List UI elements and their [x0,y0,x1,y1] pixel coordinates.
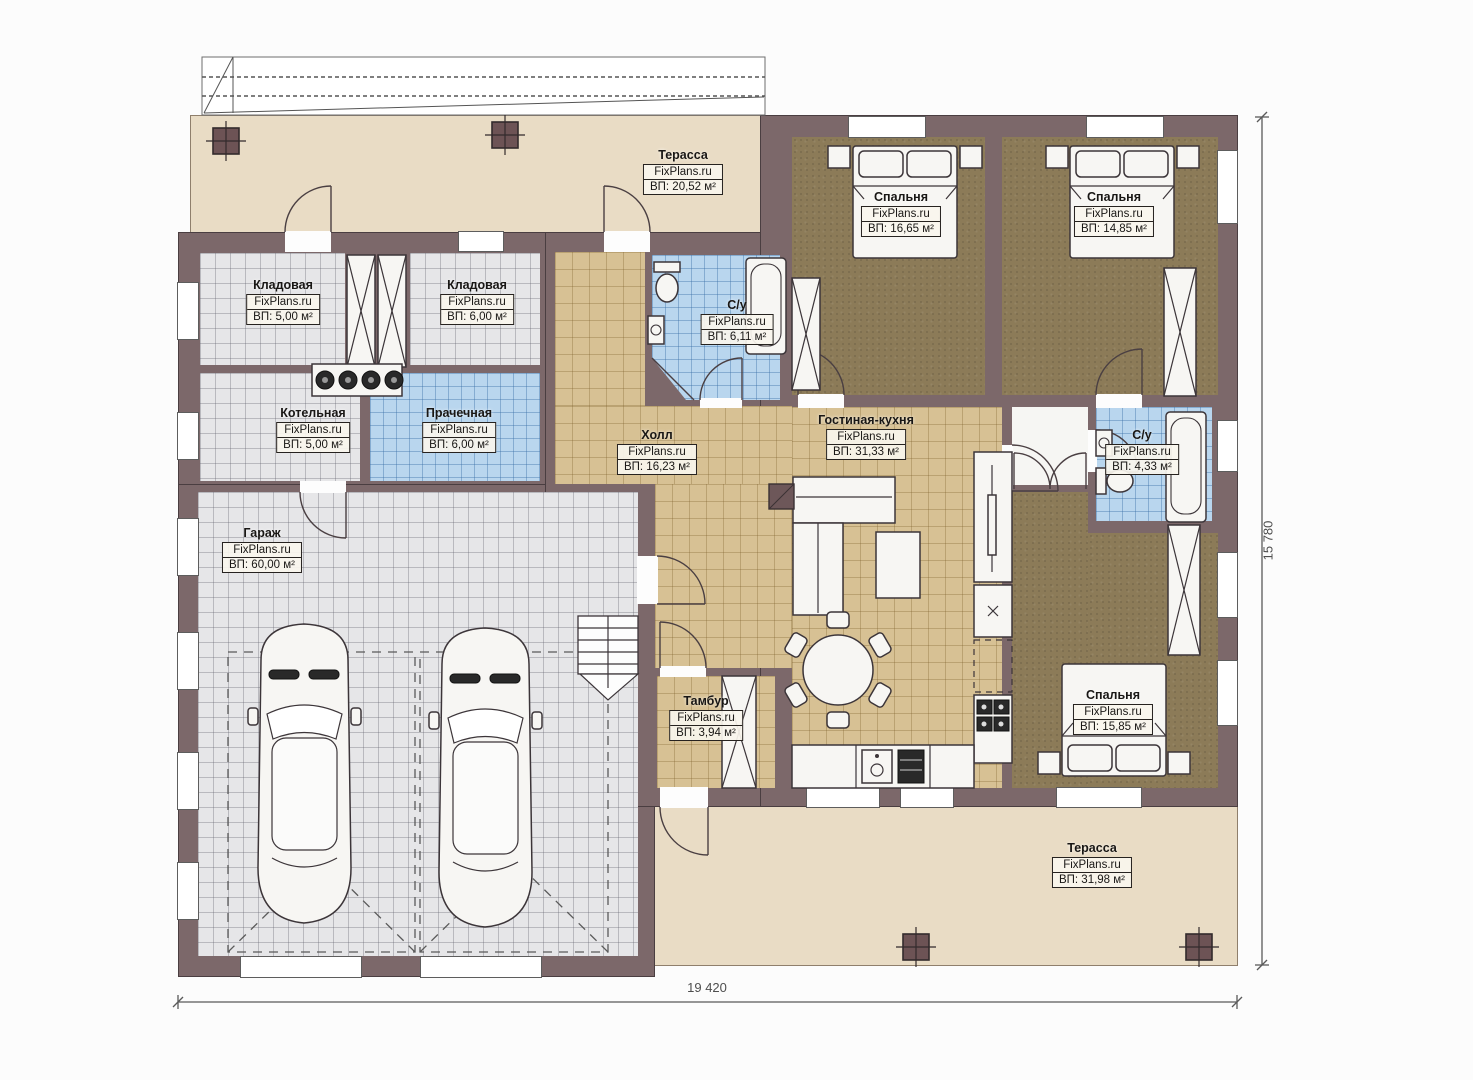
room-area: ВП: 31,98 м² [1053,872,1131,887]
dimension-width: 19 420 [687,980,727,995]
room-area: ВП: 16,23 м² [618,459,696,474]
room-label-storage-1: Кладовая FixPlans.ru ВП: 5,00 м² [246,278,320,325]
window [177,752,199,810]
window [900,787,954,808]
window [1086,116,1164,138]
roof-overhang [202,57,765,115]
door-opening [700,398,742,408]
room-label-terrace-top: Терасса FixPlans.ru ВП: 20,52 м² [643,148,723,195]
brand-label: FixPlans.ru [441,295,513,309]
door-opening [798,394,844,408]
room-label-bathroom-top: С/у FixPlans.ru ВП: 6,11 м² [701,298,774,345]
room-label-terrace-bottom: Терасса FixPlans.ru ВП: 31,98 м² [1052,841,1132,888]
room-name: Терасса [658,148,708,162]
room-label-laundry: Прачечная FixPlans.ru ВП: 6,00 м² [422,406,496,453]
room-name: Гараж [243,526,280,540]
brand-label: FixPlans.ru [702,315,773,329]
room-label-boiler-room: Котельная FixPlans.ru ВП: 5,00 м² [276,406,350,453]
brand-label: FixPlans.ru [1074,705,1152,719]
room-area: ВП: 3,94 м² [670,725,742,740]
bedroom-3-floor-a [1012,492,1088,788]
room-area: ВП: 31,33 м² [827,444,905,459]
window [1056,787,1142,808]
brand-label: FixPlans.ru [670,711,742,725]
window [177,412,199,460]
room-label-bathroom-right: С/у FixPlans.ru ВП: 4,33 м² [1105,428,1179,475]
dimension-height: 15 780 [1260,521,1275,561]
garage-door [420,956,542,978]
door-opening [604,231,650,252]
door-opening [285,231,331,252]
brand-label: FixPlans.ru [618,445,696,459]
floor-plan: Терасса FixPlans.ru ВП: 20,52 м² Спальня… [0,0,1473,1080]
room-area: ВП: 20,52 м² [644,179,722,194]
window [806,787,880,808]
room-name: Котельная [280,406,345,420]
door-opening [1096,394,1142,408]
room-name: Спальня [1086,688,1140,702]
room-name: С/у [727,298,746,312]
room-name: Кладовая [447,278,507,292]
room-area: ВП: 6,11 м² [702,329,773,344]
room-area: ВП: 15,85 м² [1074,719,1152,734]
door-opening [660,666,706,677]
dimension-line-bottom [173,995,1242,1009]
window [458,231,504,252]
garage-door [240,956,362,978]
room-name: Спальня [1087,190,1141,204]
hall-floor-c [655,484,792,668]
brand-label: FixPlans.ru [827,430,905,444]
window [177,862,199,920]
living-kitchen-floor [792,407,1002,788]
window [177,632,199,690]
room-label-hall: Холл FixPlans.ru ВП: 16,23 м² [617,428,697,475]
room-name: Терасса [1067,841,1117,855]
bedroom-3-floor-b [1088,533,1218,788]
door-opening [660,787,708,808]
door-opening [300,481,346,493]
room-area: ВП: 5,00 м² [247,309,319,324]
room-area: ВП: 60,00 м² [223,557,301,572]
room-name: Холл [641,428,672,442]
brand-label: FixPlans.ru [1075,207,1153,221]
door-opening [1088,430,1097,472]
brand-label: FixPlans.ru [423,423,495,437]
room-label-vestibule: Тамбур FixPlans.ru ВП: 3,94 м² [669,694,743,741]
brand-label: FixPlans.ru [1106,445,1178,459]
room-label-bedroom-3: Спальня FixPlans.ru ВП: 15,85 м² [1073,688,1153,735]
room-name: Кладовая [253,278,313,292]
brand-label: FixPlans.ru [862,207,940,221]
brand-label: FixPlans.ru [644,165,722,179]
brand-label: FixPlans.ru [247,295,319,309]
room-name: Прачечная [426,406,492,420]
window [1217,552,1238,618]
corridor-closet-floor [1012,407,1088,485]
window [1217,420,1238,472]
window [1217,150,1238,224]
room-label-living-kitchen: Гостиная-кухня FixPlans.ru ВП: 31,33 м² [818,413,914,460]
window [1217,660,1238,726]
room-name: Спальня [874,190,928,204]
room-label-garage: Гараж FixPlans.ru ВП: 60,00 м² [222,526,302,573]
room-area: ВП: 16,65 м² [862,221,940,236]
room-name: Тамбур [683,694,728,708]
bedroom-1-floor [792,137,985,395]
door-opening [1002,445,1013,491]
room-label-bedroom-1: Спальня FixPlans.ru ВП: 16,65 м² [861,190,941,237]
room-label-bedroom-2: Спальня FixPlans.ru ВП: 14,85 м² [1074,190,1154,237]
room-name: С/у [1132,428,1151,442]
room-area: ВП: 6,00 м² [441,309,513,324]
room-area: ВП: 5,00 м² [277,437,349,452]
room-area: ВП: 6,00 м² [423,437,495,452]
brand-label: FixPlans.ru [1053,858,1131,872]
room-area: ВП: 4,33 м² [1106,459,1178,474]
brand-label: FixPlans.ru [223,543,301,557]
room-name: Гостиная-кухня [818,413,914,427]
room-area: ВП: 14,85 м² [1075,221,1153,236]
window [177,282,199,340]
window [848,116,926,138]
bedroom-2-floor [1002,137,1218,395]
hall-floor-a [555,252,645,406]
window [177,518,199,576]
terrace-bottom-floor [652,806,1238,966]
brand-label: FixPlans.ru [277,423,349,437]
room-label-storage-2: Кладовая FixPlans.ru ВП: 6,00 м² [440,278,514,325]
door-opening [637,556,658,604]
